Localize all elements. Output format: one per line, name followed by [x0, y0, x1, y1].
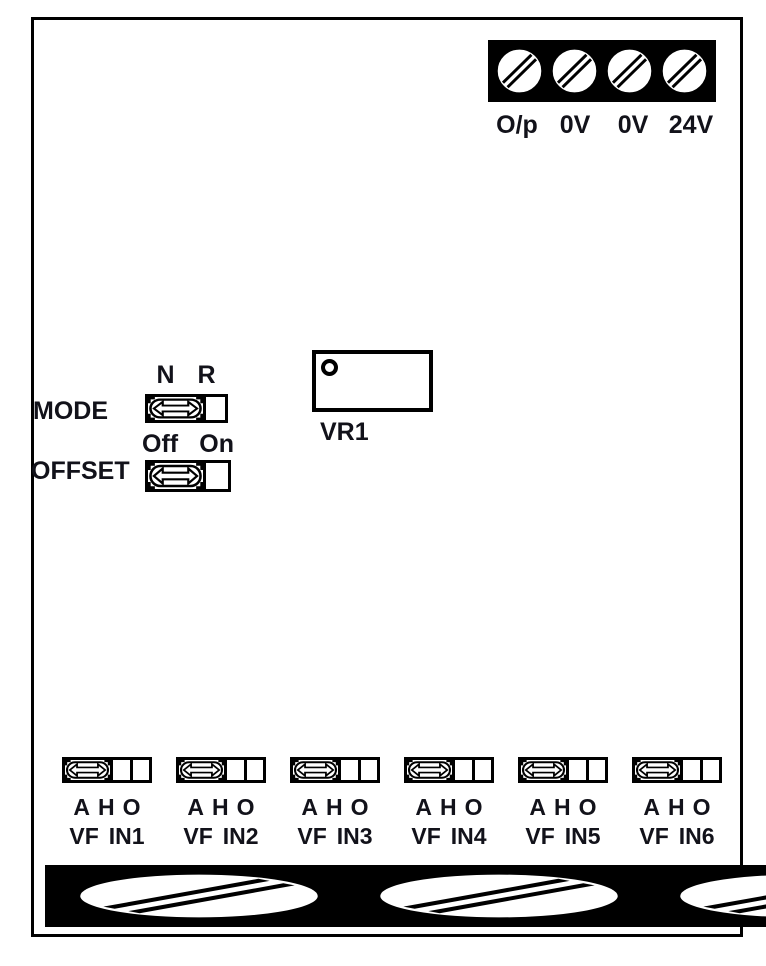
screw-terminal-icon — [49, 869, 349, 923]
power-terminal-label: 0V — [546, 111, 604, 140]
position-label: O — [351, 794, 369, 821]
position-label: A — [529, 794, 546, 821]
offset-switch-knob[interactable] — [148, 463, 203, 489]
channel-2-switch-cell[interactable] — [224, 760, 244, 780]
channel-6-terminal-labels: VF IN6 — [632, 823, 722, 850]
channel-6: A H O VF IN6 — [632, 757, 722, 850]
slide-knob-arrow-icon — [148, 397, 203, 420]
offset-switch-position-cell[interactable] — [203, 463, 228, 489]
channel-1-switch-knob[interactable] — [65, 760, 110, 780]
channel-1-switch-cell[interactable] — [130, 760, 150, 780]
channel-5-switch-cell[interactable] — [586, 760, 606, 780]
mode-switch[interactable] — [145, 394, 228, 423]
power-terminal-label: O/p — [488, 111, 546, 140]
terminal-label: VF — [525, 823, 554, 850]
channel-1-switch[interactable] — [62, 757, 152, 783]
terminal-label: VF — [69, 823, 98, 850]
terminal-label: IN1 — [109, 823, 145, 850]
channel-4-switch-cell[interactable] — [452, 760, 472, 780]
slide-knob-arrow-icon — [179, 760, 224, 780]
screw-terminal-icon — [349, 869, 649, 923]
mode-switch-label: MODE — [33, 397, 108, 426]
channel-2-terminal-labels: VF IN2 — [176, 823, 266, 850]
position-label: H — [554, 794, 571, 821]
position-label: O — [693, 794, 711, 821]
slide-knob-arrow-icon — [407, 760, 452, 780]
terminal-label: IN6 — [679, 823, 715, 850]
channel-6-position-labels: A H O — [632, 794, 722, 821]
channel-6-switch-cell[interactable] — [680, 760, 700, 780]
position-label: O — [237, 794, 255, 821]
channel-5-switch-knob[interactable] — [521, 760, 566, 780]
screw-terminal-icon — [602, 44, 657, 98]
channel-3-position-labels: A H O — [290, 794, 380, 821]
channel-3-switch-cell[interactable] — [358, 760, 378, 780]
vr1-adjust-screw-icon[interactable] — [321, 359, 338, 376]
channel-4: A H O VF IN4 — [404, 757, 494, 850]
mode-switch-knob[interactable] — [148, 397, 203, 420]
input-terminal-group — [45, 865, 766, 927]
channel-4-switch-cell[interactable] — [472, 760, 492, 780]
offset-position-off-label: Off — [142, 430, 178, 459]
terminal-label: VF — [411, 823, 440, 850]
channel-5: A H O VF IN5 — [518, 757, 608, 850]
channel-1-switch-cell[interactable] — [110, 760, 130, 780]
channel-4-terminal-labels: VF IN4 — [404, 823, 494, 850]
channel-3: A H O VF IN3 — [290, 757, 380, 850]
offset-position-on-label: On — [199, 430, 234, 459]
mode-switch-position-labels: N R — [145, 361, 227, 390]
channel-5-switch[interactable] — [518, 757, 608, 783]
channel-1: A H O VF IN1 — [62, 757, 152, 850]
vr1-potentiometer[interactable] — [312, 350, 433, 412]
vr1-label: VR1 — [320, 418, 369, 447]
terminal-label: VF — [183, 823, 212, 850]
channel-1-position-labels: A H O — [62, 794, 152, 821]
channel-4-position-labels: A H O — [404, 794, 494, 821]
channel-1-terminal-labels: VF IN1 — [62, 823, 152, 850]
terminal-label: IN3 — [337, 823, 373, 850]
channel-2-switch-cell[interactable] — [244, 760, 264, 780]
channel-5-switch-cell[interactable] — [566, 760, 586, 780]
terminal-label: IN2 — [223, 823, 259, 850]
power-terminal-label: 24V — [662, 111, 720, 140]
channel-4-switch-knob[interactable] — [407, 760, 452, 780]
offset-switch-label: OFFSET — [31, 457, 130, 486]
slide-knob-arrow-icon — [521, 760, 566, 780]
terminal-label: VF — [639, 823, 668, 850]
screw-terminal-icon — [492, 44, 547, 98]
channel-2-position-labels: A H O — [176, 794, 266, 821]
channel-2: A H O VF IN2 — [176, 757, 266, 850]
power-terminal-labels: O/p 0V 0V 24V — [488, 111, 720, 140]
slide-knob-arrow-icon — [293, 760, 338, 780]
position-label: O — [579, 794, 597, 821]
position-label: H — [98, 794, 115, 821]
screw-terminal-icon — [657, 44, 712, 98]
position-label: H — [326, 794, 343, 821]
position-label: H — [440, 794, 457, 821]
slide-knob-arrow-icon — [148, 463, 203, 489]
position-label: H — [212, 794, 229, 821]
position-label: O — [465, 794, 483, 821]
channel-3-terminal-labels: VF IN3 — [290, 823, 380, 850]
terminal-label: IN4 — [451, 823, 487, 850]
position-label: A — [643, 794, 660, 821]
channel-3-switch[interactable] — [290, 757, 380, 783]
position-label: O — [123, 794, 141, 821]
position-label: A — [415, 794, 432, 821]
channel-6-switch[interactable] — [632, 757, 722, 783]
position-label: H — [668, 794, 685, 821]
channel-3-switch-cell[interactable] — [338, 760, 358, 780]
channel-3-switch-knob[interactable] — [293, 760, 338, 780]
channel-2-switch[interactable] — [176, 757, 266, 783]
terminal-label: VF — [297, 823, 326, 850]
slide-knob-arrow-icon — [635, 760, 680, 780]
slide-knob-arrow-icon — [65, 760, 110, 780]
position-label: A — [301, 794, 318, 821]
mode-switch-position-cell[interactable] — [203, 397, 225, 420]
power-terminal-block — [488, 40, 716, 102]
channel-6-switch-knob[interactable] — [635, 760, 680, 780]
channel-4-switch[interactable] — [404, 757, 494, 783]
channel-5-terminal-labels: VF IN5 — [518, 823, 608, 850]
power-terminal-label: 0V — [604, 111, 662, 140]
channel-6-switch-cell[interactable] — [700, 760, 720, 780]
position-label: A — [73, 794, 90, 821]
screw-terminal-icon — [649, 869, 766, 923]
mode-position-r-label: R — [197, 361, 215, 390]
channel-5-position-labels: A H O — [518, 794, 608, 821]
mode-position-n-label: N — [156, 361, 174, 390]
position-label: A — [187, 794, 204, 821]
screw-terminal-icon — [547, 44, 602, 98]
input-terminal-block — [45, 865, 730, 927]
offset-switch[interactable] — [145, 460, 231, 492]
offset-switch-position-labels: Off On — [142, 430, 234, 459]
terminal-label: IN5 — [565, 823, 601, 850]
channel-2-switch-knob[interactable] — [179, 760, 224, 780]
